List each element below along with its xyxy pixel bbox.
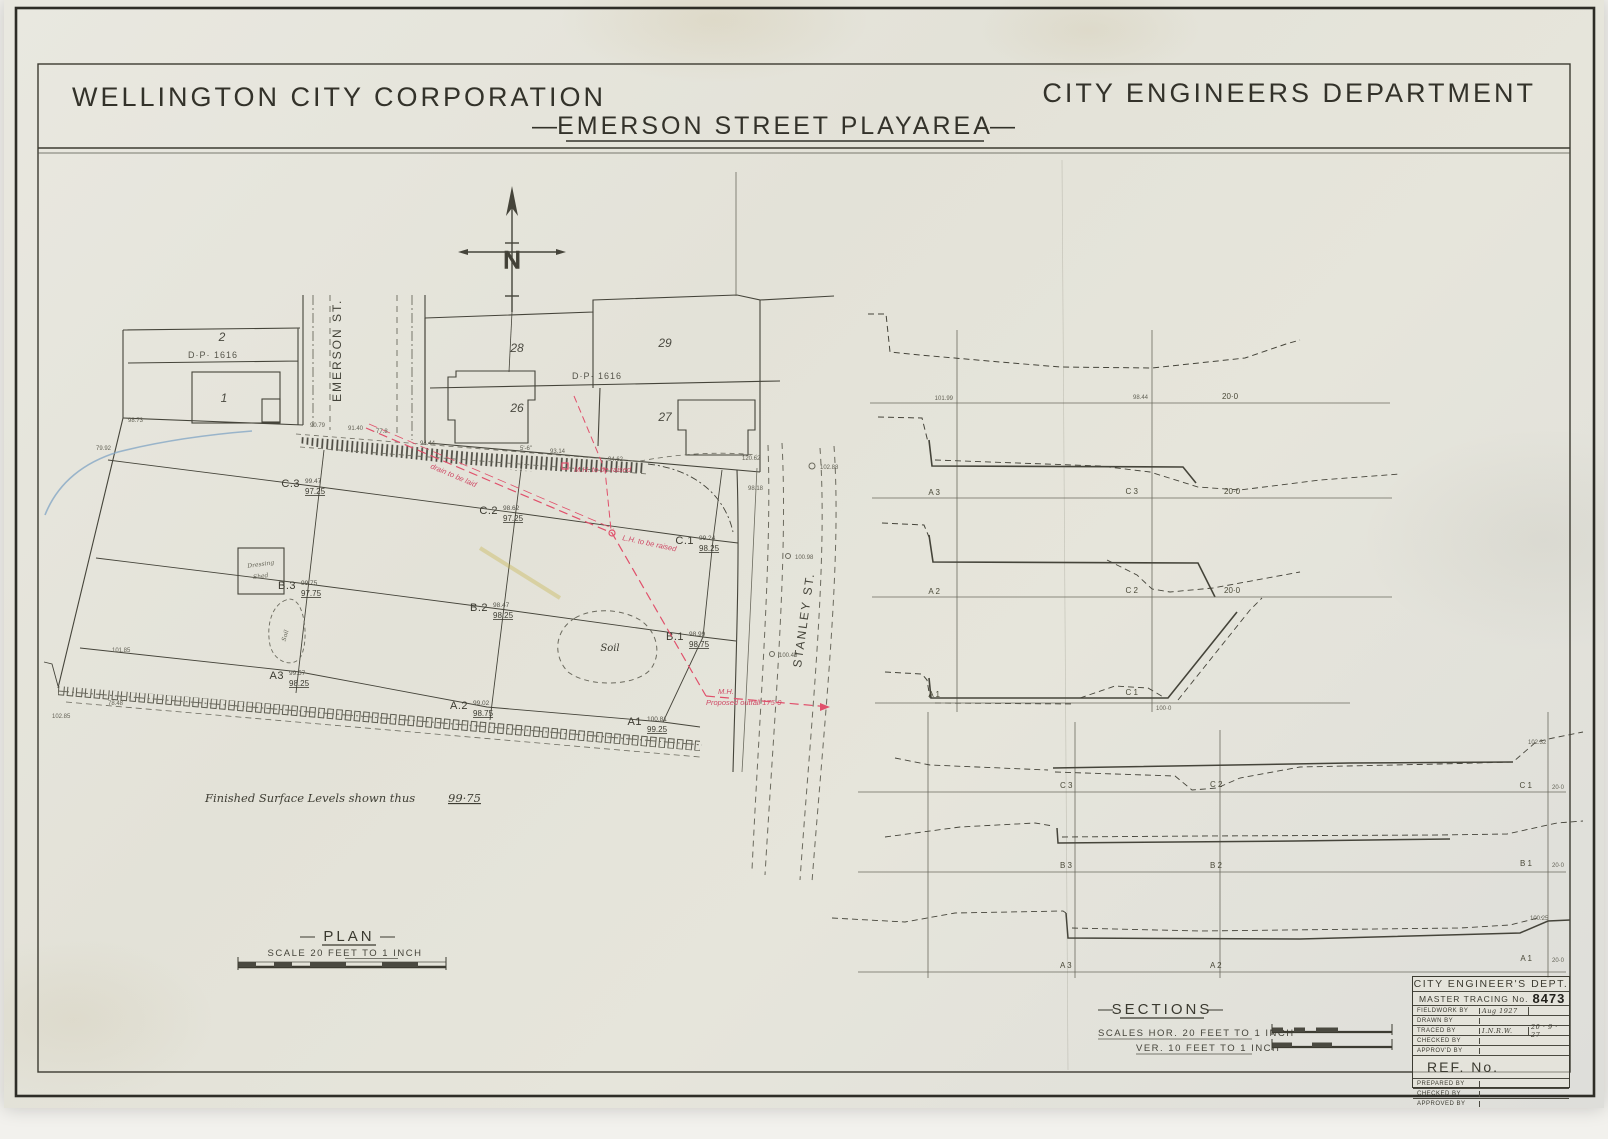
levels-note-text: Finished Surface Levels shown thus bbox=[204, 791, 415, 805]
svg-text:5'-6": 5'-6" bbox=[520, 446, 532, 452]
svg-text:102.85: 102.85 bbox=[52, 714, 71, 720]
soil-label-small: Soil bbox=[281, 629, 291, 642]
svg-text:C 2: C 2 bbox=[1210, 780, 1223, 789]
svg-text:100.81: 100.81 bbox=[647, 716, 667, 723]
sections-scale-ver: VER. 10 FEET TO 1 INCH bbox=[1136, 1043, 1280, 1054]
emerson-st-label: EMERSON ST. bbox=[330, 299, 344, 402]
svg-text:101.99: 101.99 bbox=[935, 396, 954, 402]
retaining-wall bbox=[44, 662, 702, 757]
svg-text:98.25: 98.25 bbox=[289, 679, 310, 688]
svg-text:20·0: 20·0 bbox=[1552, 958, 1565, 964]
svg-text:20·0: 20·0 bbox=[1222, 392, 1239, 401]
lot-26: 26 bbox=[509, 401, 524, 415]
stanley-street: STANLEY ST. bbox=[752, 443, 836, 882]
sections-scale-hor: SCALES HOR. 20 FEET TO 1 INCH bbox=[1098, 1028, 1295, 1039]
long-sections: C 3 C 2 C 1 20·0 102.32 B 3 B 2 B 1 20·0… bbox=[832, 712, 1583, 978]
svg-text:98.25: 98.25 bbox=[493, 611, 514, 620]
svg-text:98.75: 98.75 bbox=[689, 640, 710, 649]
plan-heading: PLAN bbox=[323, 928, 374, 945]
svg-text:A 2: A 2 bbox=[1210, 961, 1222, 970]
title-block-row-traced: TRACED BY I.N.R.W. 20 · 9 · 27 bbox=[1413, 1026, 1569, 1036]
svg-text:98.62: 98.62 bbox=[503, 505, 520, 512]
lh-raised-note: L.H. to be raised bbox=[622, 533, 679, 553]
dressing-shed-label-2: Shed bbox=[253, 572, 269, 581]
plan-svg: WELLINGTON CITY CORPORATION CITY ENGINEE… bbox=[0, 0, 1608, 1139]
title-block: CITY ENGINEER'S DEPT. MASTER TRACING No.… bbox=[1412, 976, 1570, 1088]
svg-text:C 3: C 3 bbox=[1060, 781, 1073, 790]
spot-levels: 90.79 91.40 77.8 94.44 5'-6" 93.14 94.62… bbox=[52, 418, 839, 720]
svg-text:97.25: 97.25 bbox=[305, 487, 326, 496]
dressing-shed-label-1: Dressing bbox=[246, 559, 275, 570]
svg-text:A 1: A 1 bbox=[928, 690, 940, 699]
lot-labels: 2 1 28 29 26 27 D·P· 1616 D·P· 1616 bbox=[188, 330, 673, 424]
title-block-dept: CITY ENGINEER'S DEPT. bbox=[1413, 977, 1569, 992]
svg-text:99.24: 99.24 bbox=[699, 535, 716, 542]
svg-text:A 2: A 2 bbox=[928, 587, 940, 596]
stream bbox=[45, 431, 252, 515]
emerson-street: EMERSON ST. bbox=[303, 295, 425, 443]
svg-text:99.25: 99.25 bbox=[647, 725, 668, 734]
lot-1: 1 bbox=[221, 391, 228, 405]
svg-text:98.44: 98.44 bbox=[1133, 395, 1149, 401]
title-block-ref: REF. No. bbox=[1413, 1056, 1569, 1079]
drawing-sheet: WELLINGTON CITY CORPORATION CITY ENGINEE… bbox=[0, 0, 1608, 1139]
master-tracing-number: 8473 bbox=[1532, 991, 1565, 1006]
svg-text:—: — bbox=[300, 928, 318, 945]
grid-point-C2: C.298.6297.25 bbox=[479, 505, 523, 523]
grid-point-C3: C.399.4797.25 bbox=[281, 478, 325, 496]
svg-text:94.44: 94.44 bbox=[420, 441, 436, 447]
outfall-mh-label: M.H. bbox=[718, 687, 734, 696]
svg-text:101.85: 101.85 bbox=[112, 648, 131, 654]
drain-note: drain to be laid bbox=[429, 462, 479, 490]
svg-text:78.48: 78.48 bbox=[108, 701, 124, 707]
svg-text:C 1: C 1 bbox=[1520, 781, 1533, 790]
svg-text:C 3: C 3 bbox=[1126, 487, 1139, 496]
corporation-title: WELLINGTON CITY CORPORATION bbox=[72, 82, 606, 112]
lot-29: 29 bbox=[657, 336, 672, 350]
sheet-title: EMERSON STREET PLAYAREA bbox=[557, 112, 993, 140]
svg-text:93.14: 93.14 bbox=[550, 449, 566, 455]
svg-text:99.02: 99.02 bbox=[473, 700, 490, 707]
dp-1616-left: D·P· 1616 bbox=[188, 350, 238, 360]
svg-text:C.1: C.1 bbox=[675, 535, 694, 547]
svg-text:C.3: C.3 bbox=[281, 478, 300, 490]
grid-point-B1: B.198.9998.75 bbox=[666, 631, 710, 649]
svg-text:20·0: 20·0 bbox=[1224, 586, 1241, 595]
sections-heading: SECTIONS bbox=[1112, 1001, 1213, 1018]
title-block-row-approved: APPROV'D BY bbox=[1413, 1046, 1569, 1056]
svg-text:99.57: 99.57 bbox=[289, 670, 306, 677]
title-block-row-prepared-by: PREPARED BY bbox=[1413, 1079, 1569, 1089]
svg-text:—: — bbox=[380, 928, 398, 945]
svg-text:97.75: 97.75 bbox=[301, 589, 322, 598]
svg-text:B 3: B 3 bbox=[1060, 861, 1073, 870]
svg-text:C.2: C.2 bbox=[479, 505, 498, 517]
lot-2: 2 bbox=[218, 330, 226, 344]
header: WELLINGTON CITY CORPORATION CITY ENGINEE… bbox=[72, 78, 1536, 141]
svg-text:98.25: 98.25 bbox=[699, 544, 720, 553]
svg-text:100.45: 100.45 bbox=[779, 653, 798, 659]
field-grid bbox=[80, 450, 738, 727]
soil-label-large: Soil bbox=[600, 643, 619, 654]
svg-text:99.47: 99.47 bbox=[305, 478, 322, 485]
levels-note-value: 99·75 bbox=[448, 791, 481, 805]
dp-1616-right: D·P· 1616 bbox=[572, 371, 622, 381]
svg-text:99.75: 99.75 bbox=[301, 580, 318, 587]
sheet-frame bbox=[16, 8, 1594, 1096]
svg-text:100.25: 100.25 bbox=[1530, 916, 1549, 922]
title-block-row-fieldwork: FIELDWORK BY Aug 1927 bbox=[1413, 1006, 1569, 1016]
svg-text:100·0: 100·0 bbox=[1156, 706, 1172, 712]
master-tracing-label: MASTER TRACING No. bbox=[1419, 994, 1528, 1004]
svg-text:B 2: B 2 bbox=[1210, 861, 1223, 870]
svg-text:98.73: 98.73 bbox=[128, 418, 144, 424]
svg-text:77.8: 77.8 bbox=[376, 429, 388, 435]
svg-text:A 1: A 1 bbox=[1520, 954, 1532, 963]
department-title: CITY ENGINEERS DEPARTMENT bbox=[1042, 78, 1536, 108]
grid-point-A2: A.299.0298.75 bbox=[450, 700, 494, 718]
mh-raised-note: M.H. to be raised bbox=[574, 465, 632, 474]
svg-text:20·0: 20·0 bbox=[1224, 487, 1241, 496]
plan-scale: — PLAN — SCALE 20 FEET TO 1 INCH bbox=[238, 928, 446, 970]
levels-note: Finished Surface Levels shown thus 99·75 bbox=[204, 791, 481, 805]
plan-scale-note: SCALE 20 FEET TO 1 INCH bbox=[268, 948, 423, 959]
svg-text:97.25: 97.25 bbox=[503, 514, 524, 523]
svg-text:94.62: 94.62 bbox=[608, 457, 624, 463]
svg-text:A1: A1 bbox=[628, 716, 642, 728]
lot-27: 27 bbox=[657, 410, 673, 424]
svg-text:98.47: 98.47 bbox=[493, 602, 510, 609]
outfall-note: Proposed outfall 175·0 bbox=[706, 698, 782, 707]
grid-point-labels: C.399.4797.25 C.298.6297.25 C.199.2498.2… bbox=[270, 478, 720, 734]
svg-text:C 1: C 1 bbox=[1126, 688, 1139, 697]
title-block-row-checked-by-2: CHECKED BY bbox=[1413, 1089, 1569, 1099]
svg-text:A 3: A 3 bbox=[928, 488, 940, 497]
svg-text:90.79: 90.79 bbox=[310, 423, 326, 429]
svg-text:98.75: 98.75 bbox=[473, 709, 494, 718]
cross-sections: 101.99 98.44 20·0 A 3 C 3 20·0 A 2 C 2 2… bbox=[868, 314, 1400, 712]
svg-text:C 2: C 2 bbox=[1126, 586, 1139, 595]
sections-scale: — SECTIONS — SCALES HOR. 20 FEET TO 1 IN… bbox=[1098, 1001, 1392, 1054]
svg-text:20·0: 20·0 bbox=[1552, 863, 1565, 869]
title-block-master-tracing: MASTER TRACING No. 8473 bbox=[1413, 992, 1569, 1006]
soil-patches: Soil Soil bbox=[269, 599, 657, 683]
svg-text:20·0: 20·0 bbox=[1552, 785, 1565, 791]
grid-point-A1: A1100.8199.25 bbox=[628, 716, 668, 734]
svg-text:100.98: 100.98 bbox=[795, 555, 814, 561]
svg-text:A 3: A 3 bbox=[1060, 961, 1072, 970]
title-dash-right: — bbox=[990, 112, 1018, 140]
svg-text:B 1: B 1 bbox=[1520, 859, 1533, 868]
sections-scale-bar-ver bbox=[1272, 1039, 1392, 1050]
svg-text:91.40: 91.40 bbox=[348, 426, 364, 432]
svg-text:A3: A3 bbox=[270, 670, 284, 682]
lot-28: 28 bbox=[509, 341, 524, 355]
svg-text:B.2: B.2 bbox=[470, 602, 488, 614]
svg-text:A.2: A.2 bbox=[450, 700, 468, 712]
svg-text:102.88: 102.88 bbox=[820, 465, 839, 471]
grid-point-B2: B.298.4798.25 bbox=[470, 602, 514, 620]
title-dash-left: — bbox=[532, 112, 560, 140]
north-letter: N bbox=[503, 247, 520, 274]
svg-text:98.99: 98.99 bbox=[689, 631, 706, 638]
svg-text:B.3: B.3 bbox=[278, 580, 296, 592]
grid-point-A3: A399.5798.25 bbox=[270, 670, 310, 688]
svg-text:102.32: 102.32 bbox=[1528, 740, 1547, 746]
svg-text:120.62: 120.62 bbox=[742, 456, 761, 462]
title-block-row-approved-by-2: APPROVED BY bbox=[1413, 1099, 1569, 1108]
svg-text:—: — bbox=[1208, 1001, 1226, 1018]
svg-text:98.18: 98.18 bbox=[748, 486, 764, 492]
svg-text:79.92: 79.92 bbox=[96, 446, 112, 452]
